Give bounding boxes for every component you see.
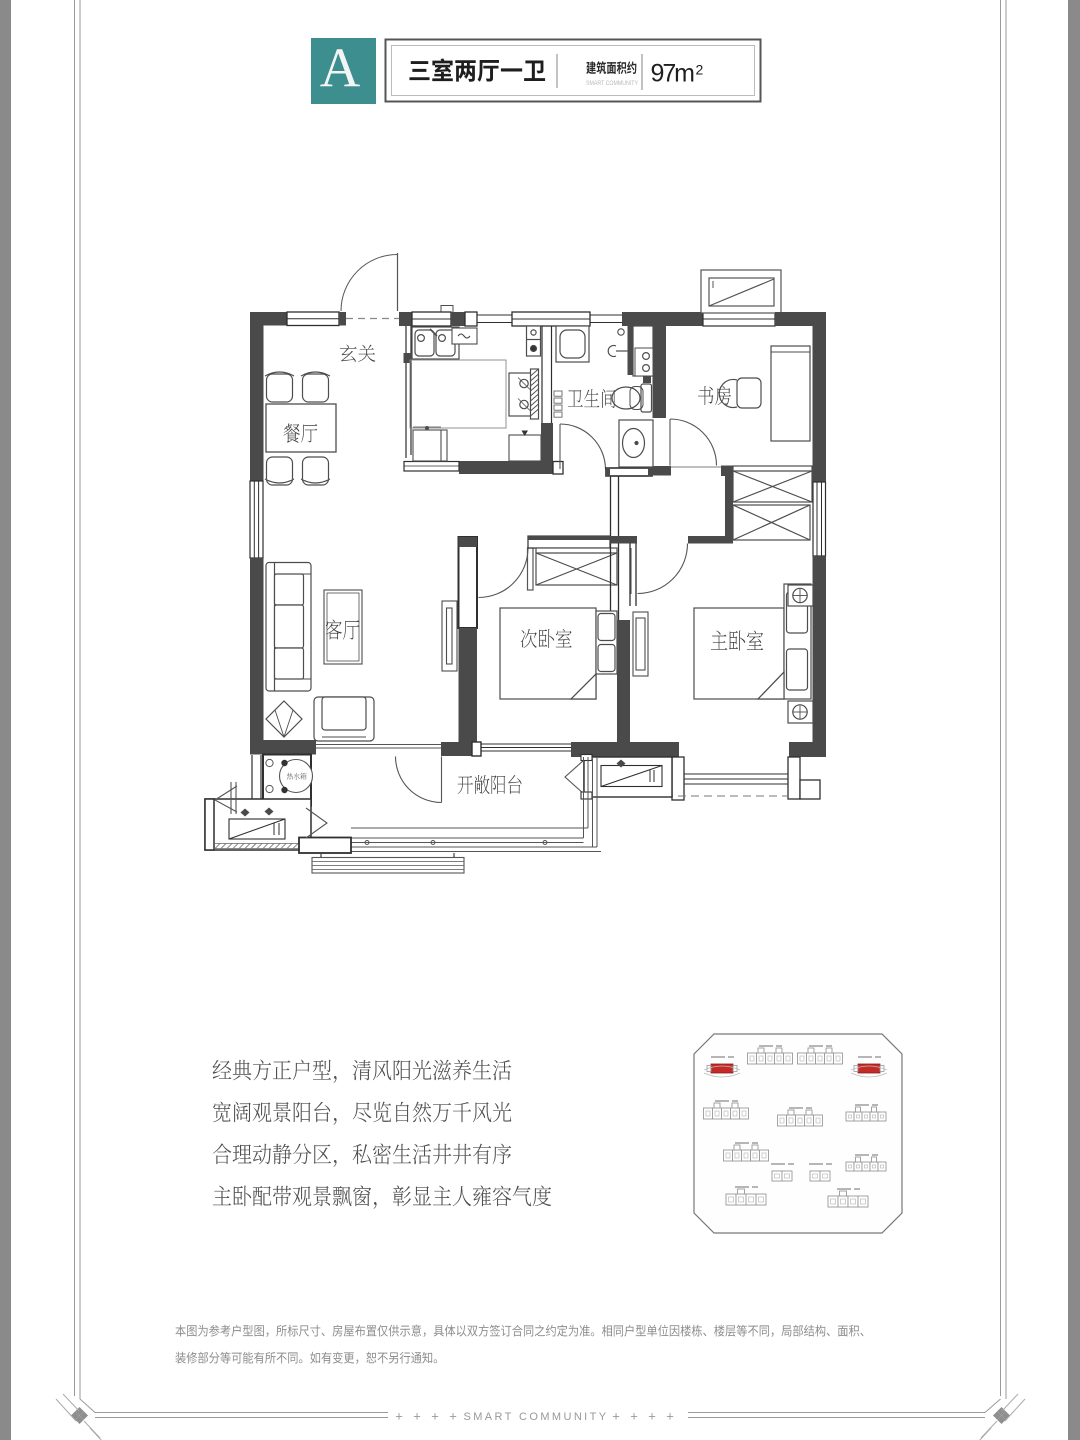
svg-text:A: A (320, 38, 361, 100)
svg-text:+: + (413, 1409, 421, 1424)
svg-text:+: + (666, 1409, 674, 1424)
svg-text:+: + (395, 1409, 403, 1424)
svg-text:+: + (630, 1409, 638, 1424)
svg-text:97m: 97m (651, 60, 696, 88)
svg-text:SMART COMMUNITY: SMART COMMUNITY (586, 80, 638, 87)
svg-text:SMART COMMUNITY: SMART COMMUNITY (464, 1411, 609, 1423)
svg-text:+: + (612, 1409, 620, 1424)
svg-text:+: + (431, 1409, 439, 1424)
svg-text:+: + (449, 1409, 457, 1424)
svg-text:+: + (648, 1409, 656, 1424)
svg-text:2: 2 (696, 62, 704, 78)
